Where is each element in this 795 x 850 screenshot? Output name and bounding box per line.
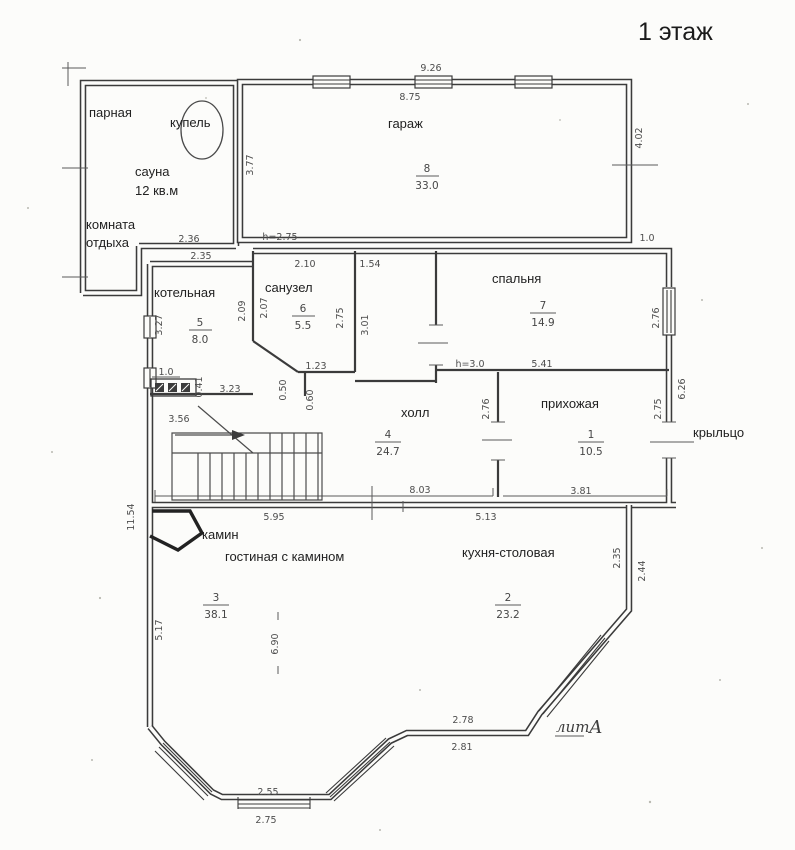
scan-speckles <box>27 39 763 831</box>
plunge-pool-shape <box>181 101 223 159</box>
dim-bedroom-window: 2.76 <box>651 307 662 328</box>
room-note-sauna-area: 12 кв.м <box>135 183 178 198</box>
garage-window-3 <box>515 76 552 88</box>
interior-walls <box>150 251 669 497</box>
room-area: 10.5 <box>579 446 602 458</box>
bedroom-window <box>663 288 675 335</box>
room-number: 5 <box>197 317 204 329</box>
staircase <box>172 406 322 500</box>
room-label-bathroom: санузел <box>265 280 313 295</box>
boiler-window-2 <box>144 368 156 388</box>
dim-bay-east-bottom: 2.81 <box>451 742 472 753</box>
room-area: 23.2 <box>496 609 519 621</box>
fireplace-shape <box>150 511 202 550</box>
room-label-hall: холл <box>401 405 429 420</box>
room-number: 2 <box>505 592 512 604</box>
dim-bay-south-top: 2.55 <box>257 787 278 798</box>
bay-window-southeast <box>326 738 394 801</box>
room-label-boiler: котельная <box>154 285 215 300</box>
room-number: 7 <box>540 300 547 312</box>
floor-plan-canvas: 1 этаж парная купель сауна 12 кв.м комна… <box>0 0 795 850</box>
roomstamp-kitchen: 2 23.2 <box>495 592 521 621</box>
dim-kitchen-east-inner: 2.35 <box>612 547 623 568</box>
height-note-garage: h=2.75 <box>262 232 297 243</box>
dim-west-side: 11.54 <box>126 503 137 530</box>
dim-bay-south-bottom: 2.75 <box>255 815 276 826</box>
dim-living-top: 5.95 <box>263 512 284 523</box>
room-number: 4 <box>385 429 392 441</box>
room-label-rest-line1: комната <box>86 217 136 232</box>
dim-stairs-width: 3.56 <box>168 414 189 425</box>
dim-garage-step: 1.0 <box>639 233 654 244</box>
labels: 1 этаж парная купель сауна 12 кв.м комна… <box>86 18 744 826</box>
room-label-parnaya: парная <box>89 105 132 120</box>
room-label-bedroom: спальня <box>492 271 541 286</box>
dim-living-depth: 6.90 <box>270 633 281 654</box>
dim-boiler-top: 2.35 <box>190 251 211 262</box>
dim-corridor-top: 1.54 <box>359 259 380 270</box>
bay-window-southwest <box>155 743 212 800</box>
room-label-entry: прихожая <box>541 396 599 411</box>
room-area: 5.5 <box>295 320 312 332</box>
dim-bathroom-top: 2.10 <box>294 259 315 270</box>
room-area: 33.0 <box>415 180 438 192</box>
dim-entry-door: 2.75 <box>653 398 664 419</box>
roomstamp-living: 3 38.1 <box>203 592 229 621</box>
dim-kitchen-east-outer: 2.44 <box>637 560 648 581</box>
page-title: 1 этаж <box>638 18 713 46</box>
roomstamp-boiler: 5 8.0 <box>189 317 212 346</box>
dim-bathroom-left: 2.07 <box>259 297 270 318</box>
room-area: 24.7 <box>376 446 399 458</box>
room-area: 14.9 <box>531 317 554 329</box>
dim-bathroom-right: 2.75 <box>335 307 346 328</box>
room-area: 38.1 <box>204 609 227 621</box>
dim-garage-left: 3.77 <box>245 154 256 175</box>
dimension-lines <box>62 62 694 674</box>
dim-entry-bottom: 3.81 <box>570 486 591 497</box>
dim-garage-right: 4.02 <box>634 127 645 148</box>
room-label-garage: гараж <box>388 116 423 131</box>
dim-bedroom-bottom: 5.41 <box>531 359 552 370</box>
room-number: 6 <box>300 303 307 315</box>
room-number: 1 <box>588 429 595 441</box>
dim-boiler-niche: 1.0 <box>158 367 173 378</box>
dim-corridor-left: 3.01 <box>360 314 371 335</box>
dim-sauna-bottom: 2.36 <box>178 234 199 245</box>
roomstamp-bathroom: 6 5.5 <box>292 303 315 332</box>
height-note-bedroom: h=3.0 <box>455 359 484 370</box>
dim-bathroom-jog-a: 0.50 <box>278 379 289 400</box>
roomstamp-garage: 8 33.0 <box>415 163 439 192</box>
roomstamp-entry: 1 10.5 <box>578 429 604 458</box>
dim-boiler-bottom: 3.23 <box>219 384 240 395</box>
dim-bathroom-jog-b: 0.60 <box>305 389 316 410</box>
dim-living-left: 5.17 <box>154 619 165 640</box>
room-number: 8 <box>424 163 431 175</box>
roomstamp-hall: 4 24.7 <box>375 429 401 458</box>
room-label-sauna: сауна <box>135 164 170 179</box>
dim-east-side: 6.26 <box>677 378 688 399</box>
room-label-fireplace: камин <box>202 527 239 542</box>
dim-hall-bottom: 8.03 <box>409 485 430 496</box>
dim-hall-door: 2.76 <box>481 398 492 419</box>
room-number: 3 <box>213 592 220 604</box>
dim-garage-top-outer: 9.26 <box>420 63 441 74</box>
room-label-porch: крыльцо <box>693 425 744 440</box>
dim-garage-top-inner: 8.75 <box>399 92 420 103</box>
roomstamp-bedroom: 7 14.9 <box>530 300 556 329</box>
dim-bay-east-top: 2.78 <box>452 715 473 726</box>
floor-plan-page: 1 этаж парная купель сауна 12 кв.м комна… <box>0 0 795 850</box>
dim-bathroom-bottom: 1.23 <box>305 361 326 372</box>
garage-window-2 <box>415 76 452 88</box>
stair-direction-arrow <box>232 430 245 440</box>
dim-boiler-left: 3.27 <box>154 314 165 335</box>
dim-kitchen-top: 5.13 <box>475 512 496 523</box>
dim-boiler-right: 2.09 <box>237 300 248 321</box>
room-label-kupel: купель <box>170 115 211 130</box>
room-label-rest-line2: отдыха <box>86 235 130 250</box>
lit-letter: А <box>587 717 603 738</box>
room-area: 8.0 <box>192 334 209 346</box>
room-label-kitchen: кухня-столовая <box>462 545 555 560</box>
room-label-living: гостиная с камином <box>225 549 344 564</box>
dim-boiler-offset: 0.41 <box>194 376 205 397</box>
garage-window-1 <box>313 76 350 88</box>
lit-word: лит <box>556 718 589 736</box>
